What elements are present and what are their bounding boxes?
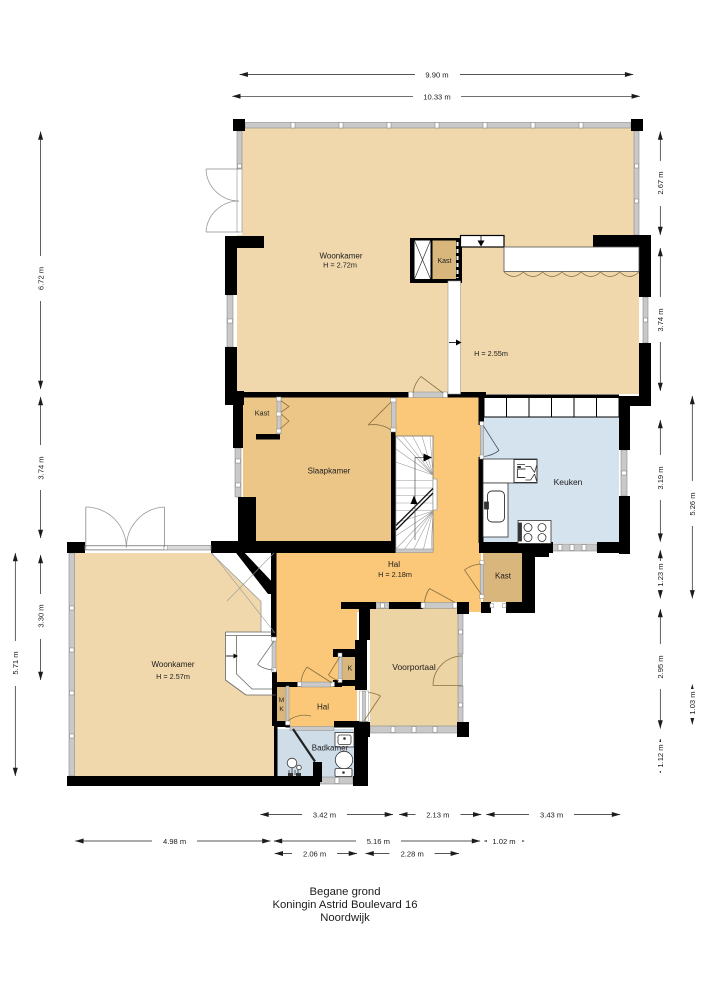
svg-text:3.43 m: 3.43 m bbox=[540, 811, 563, 820]
svg-text:5.26 m: 5.26 m bbox=[688, 492, 697, 515]
svg-text:Woonkamer: Woonkamer bbox=[320, 252, 363, 261]
svg-text:Slaapkamer: Slaapkamer bbox=[308, 467, 351, 476]
svg-text:5.71 m: 5.71 m bbox=[11, 651, 20, 674]
svg-text:2.95 m: 2.95 m bbox=[656, 655, 665, 678]
svg-text:Noordwijk: Noordwijk bbox=[320, 912, 370, 924]
svg-text:1.02 m: 1.02 m bbox=[492, 837, 515, 846]
svg-text:Hal: Hal bbox=[388, 560, 400, 569]
svg-text:4.98 m: 4.98 m bbox=[163, 837, 186, 846]
svg-text:3.19 m: 3.19 m bbox=[656, 466, 665, 489]
svg-text:Voorportaal: Voorportaal bbox=[392, 662, 436, 672]
svg-text:2.67 m: 2.67 m bbox=[656, 171, 665, 194]
svg-text:H = 2.72m: H = 2.72m bbox=[323, 261, 357, 270]
svg-text:3.42 m: 3.42 m bbox=[313, 811, 336, 820]
svg-text:2.06 m: 2.06 m bbox=[303, 850, 326, 859]
svg-text:2.28 m: 2.28 m bbox=[401, 850, 424, 859]
svg-text:3.74 m: 3.74 m bbox=[37, 456, 46, 479]
svg-text:3.30 m: 3.30 m bbox=[37, 604, 46, 627]
svg-text:Keuken: Keuken bbox=[554, 477, 583, 487]
svg-text:3.74 m: 3.74 m bbox=[656, 308, 665, 331]
svg-text:Begane grond: Begane grond bbox=[310, 886, 381, 898]
svg-text:Koningin Astrid Boulevard 16: Koningin Astrid Boulevard 16 bbox=[272, 899, 417, 911]
svg-text:6.72 m: 6.72 m bbox=[37, 267, 46, 290]
svg-text:1.23 m: 1.23 m bbox=[656, 563, 665, 586]
svg-text:K: K bbox=[348, 666, 353, 673]
svg-text:2.13 m: 2.13 m bbox=[426, 811, 449, 820]
svg-text:Badkamer: Badkamer bbox=[312, 744, 349, 753]
svg-text:H = 2.55m: H = 2.55m bbox=[474, 349, 508, 358]
svg-text:Kast: Kast bbox=[255, 409, 270, 418]
svg-text:1.12 m: 1.12 m bbox=[656, 744, 665, 767]
svg-text:K: K bbox=[279, 706, 284, 713]
svg-text:5.16 m: 5.16 m bbox=[367, 837, 390, 846]
svg-text:1.03 m: 1.03 m bbox=[688, 691, 697, 714]
svg-text:Kast: Kast bbox=[437, 258, 451, 265]
svg-text:10.33 m: 10.33 m bbox=[423, 92, 450, 101]
svg-text:M: M bbox=[279, 697, 284, 704]
svg-text:Hal: Hal bbox=[317, 703, 329, 712]
svg-text:H = 2.57m: H = 2.57m bbox=[156, 672, 190, 681]
svg-text:Woonkamer: Woonkamer bbox=[152, 660, 195, 669]
svg-text:9.90 m: 9.90 m bbox=[425, 71, 448, 80]
svg-text:H = 2.18m: H = 2.18m bbox=[378, 570, 412, 579]
svg-text:Kast: Kast bbox=[495, 572, 512, 581]
